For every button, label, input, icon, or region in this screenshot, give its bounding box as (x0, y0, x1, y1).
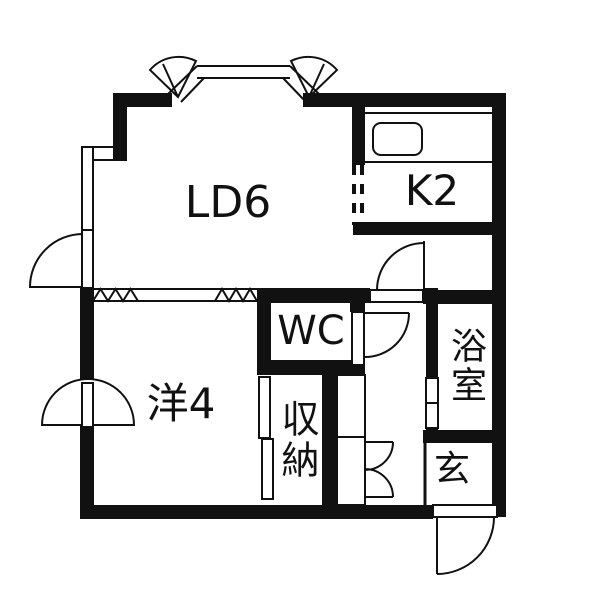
wc-door (352, 312, 409, 365)
outer-wall-left-upper (113, 93, 127, 160)
room-label-bathroom: 浴室 (447, 327, 483, 405)
floorplan-canvas: LD6 K2 WC 洋4 収納 浴室 玄 (0, 0, 600, 600)
floorplan-drawing (0, 0, 600, 600)
kitchen-counter (365, 113, 492, 162)
bathroom-folding-door (426, 378, 438, 428)
storage-right-wall (322, 375, 337, 505)
wc-top-wall (257, 288, 370, 303)
room-label-toilet: WC (277, 311, 344, 351)
pass-through-opening (354, 165, 362, 225)
accordion-partition (93, 289, 257, 301)
kitchen-sink (373, 123, 422, 155)
kitchen-bottom-wall (353, 222, 506, 235)
outer-wall-left-mid (80, 287, 94, 384)
room-label-entrance: 玄 (434, 452, 470, 488)
entrance-door (433, 505, 497, 574)
western-room-window (42, 379, 134, 427)
wc-right-wall-upper (350, 303, 365, 312)
bathroom-top-wall (423, 290, 506, 304)
room-label-living-dining: LD6 (185, 181, 271, 225)
wc-bottom-wall (257, 360, 352, 375)
bathroom-left-wall (426, 304, 438, 378)
room-label-kitchen: K2 (405, 170, 459, 212)
outer-wall-right (492, 93, 506, 517)
hall-cabinet (337, 375, 393, 505)
bathroom-bottom-wall (423, 430, 506, 443)
storage-sliding-doors (259, 377, 273, 499)
kitchen-partition-wall (352, 93, 365, 165)
ld-casement-window (30, 147, 127, 288)
outer-wall-bottom (80, 505, 433, 519)
hall-door (370, 241, 424, 302)
outer-wall-top-right (303, 93, 506, 107)
room-label-storage: 収納 (278, 399, 316, 481)
room-label-western-room: 洋4 (147, 383, 216, 425)
